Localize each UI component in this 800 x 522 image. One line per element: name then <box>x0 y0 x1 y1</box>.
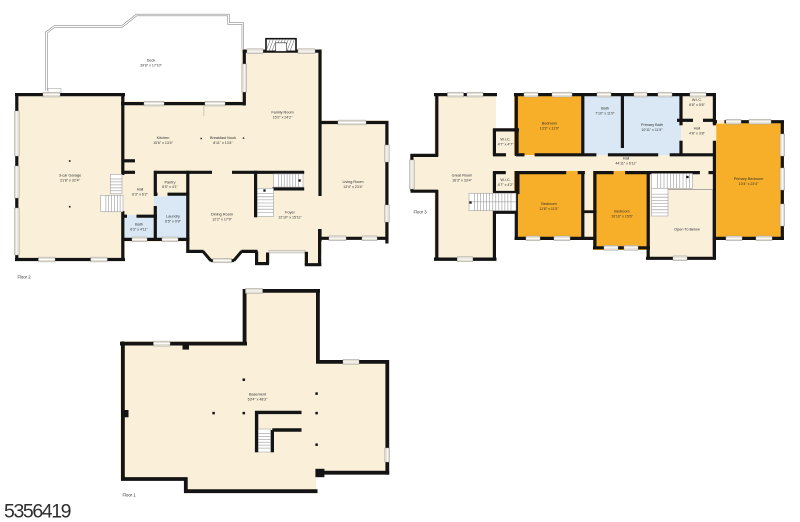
svg-text:44'11" x 6'11": 44'11" x 6'11" <box>615 161 637 165</box>
svg-text:5356419: 5356419 <box>4 501 71 522</box>
svg-text:Primary Bedroom: Primary Bedroom <box>734 177 764 181</box>
svg-text:10'10" x 15'6": 10'10" x 15'6" <box>611 214 633 218</box>
svg-text:Floor 2: Floor 2 <box>18 275 32 280</box>
svg-text:Living Room: Living Room <box>342 180 363 184</box>
svg-text:Basement: Basement <box>249 393 267 397</box>
svg-text:7'10" x 11'9": 7'10" x 11'9" <box>595 111 615 115</box>
svg-text:Hall: Hall <box>694 127 701 131</box>
svg-text:21'8" x 32'4": 21'8" x 32'4" <box>60 178 80 182</box>
svg-text:Bedroom: Bedroom <box>614 210 629 214</box>
svg-text:12'2" x 17'9": 12'2" x 17'9" <box>212 217 232 221</box>
svg-text:15'2" x 24'2": 15'2" x 24'2" <box>273 115 293 119</box>
svg-text:6'3" x 6'2": 6'3" x 6'2" <box>132 192 148 196</box>
svg-text:39'8" x 17'10": 39'8" x 17'10" <box>140 63 162 67</box>
svg-text:16'3" x 33'4": 16'3" x 33'4" <box>452 178 472 182</box>
svg-text:Laundry: Laundry <box>166 215 180 219</box>
svg-text:15'6" x 13'4": 15'6" x 13'4" <box>153 141 173 145</box>
svg-text:6'8" x 5'6": 6'8" x 5'6" <box>689 103 705 107</box>
svg-text:Bath: Bath <box>135 223 143 227</box>
svg-text:Open To Below: Open To Below <box>674 228 700 232</box>
svg-text:Great Room: Great Room <box>452 174 473 178</box>
svg-text:6'5" x 4'1": 6'5" x 4'1" <box>162 185 178 189</box>
svg-text:13'3" x 11'9": 13'3" x 11'9" <box>540 126 560 130</box>
svg-text:Breakfast Nook: Breakfast Nook <box>210 136 236 140</box>
svg-text:Family Room: Family Room <box>271 111 293 115</box>
svg-text:10'11" x 11'9": 10'11" x 11'9" <box>641 128 663 132</box>
svg-text:12'10" x 15'11": 12'10" x 15'11" <box>278 215 302 219</box>
svg-text:4'7" x 4'7": 4'7" x 4'7" <box>498 142 514 146</box>
svg-text:Foyer: Foyer <box>285 211 295 215</box>
svg-text:Dining Room: Dining Room <box>211 213 233 217</box>
svg-text:8'11" x 13'4": 8'11" x 13'4" <box>213 141 233 145</box>
svg-text:4'8" x 3'8": 4'8" x 3'8" <box>689 131 705 135</box>
svg-text:6'3" x 4'11": 6'3" x 4'11" <box>130 227 148 231</box>
svg-text:W.I.C.: W.I.C. <box>692 98 702 102</box>
svg-text:Floor 3: Floor 3 <box>414 210 428 215</box>
svg-text:Pantry: Pantry <box>165 180 176 184</box>
svg-text:11'8" x 11'5": 11'8" x 11'5" <box>539 207 559 211</box>
svg-text:53'4" x 48'3": 53'4" x 48'3" <box>248 397 268 401</box>
svg-text:Bedroom: Bedroom <box>542 122 557 126</box>
svg-text:Hall: Hall <box>137 188 144 192</box>
svg-text:3-car Garage: 3-car Garage <box>59 174 81 178</box>
svg-text:Bath: Bath <box>601 107 609 111</box>
svg-text:W.I.C.: W.I.C. <box>500 178 510 182</box>
svg-text:Kitchen: Kitchen <box>157 136 170 140</box>
svg-text:Primary Bath: Primary Bath <box>641 123 663 127</box>
svg-text:6'5" x 9'9": 6'5" x 9'9" <box>165 219 181 223</box>
svg-text:Floor 1: Floor 1 <box>123 493 137 498</box>
svg-text:Hall: Hall <box>623 157 630 161</box>
svg-text:Bedroom: Bedroom <box>541 202 556 206</box>
svg-text:13'4" x 23'4": 13'4" x 23'4" <box>739 182 759 186</box>
svg-text:13'4" x 23'4": 13'4" x 23'4" <box>343 185 363 189</box>
svg-text:Deck: Deck <box>147 59 156 63</box>
svg-text:W.I.C.: W.I.C. <box>500 138 510 142</box>
svg-text:4'7" x 4'2": 4'7" x 4'2" <box>498 183 514 187</box>
